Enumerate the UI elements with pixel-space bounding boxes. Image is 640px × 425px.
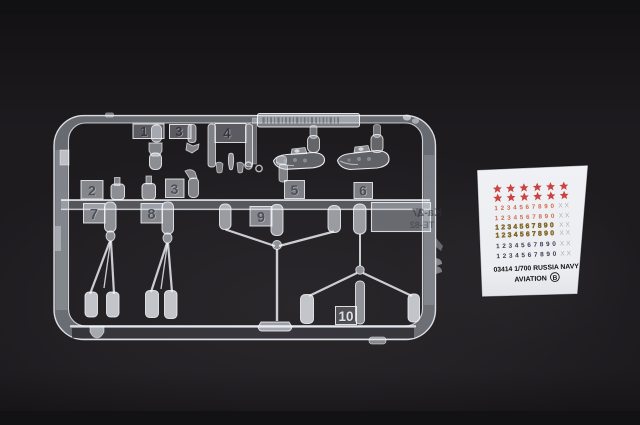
svg-text:8: 8 xyxy=(147,207,155,223)
svg-text:7: 7 xyxy=(90,207,98,223)
svg-text:AVIATION: AVIATION xyxy=(514,275,547,283)
svg-text:3: 3 xyxy=(171,181,179,197)
svg-text:10: 10 xyxy=(338,309,353,324)
svg-text:4: 4 xyxy=(223,126,231,141)
svg-text:XX: XX xyxy=(560,240,573,248)
svg-text:TE-82: TE-82 xyxy=(410,220,435,230)
svg-text:1: 1 xyxy=(140,124,147,139)
svg-text:B: B xyxy=(552,275,557,282)
svg-text:XX: XX xyxy=(558,202,571,210)
svg-text:2: 2 xyxy=(88,183,96,199)
svg-text:XX: XX xyxy=(559,229,572,237)
svg-text:9: 9 xyxy=(257,210,265,226)
svg-text:3: 3 xyxy=(175,124,182,139)
svg-text:7: 7 xyxy=(416,206,423,220)
svg-text:6: 6 xyxy=(359,184,367,199)
svg-text:5: 5 xyxy=(291,182,299,198)
svg-text:XX: XX xyxy=(560,250,573,258)
svg-text:XX: XX xyxy=(559,212,572,220)
svg-text:XX: XX xyxy=(559,221,572,229)
